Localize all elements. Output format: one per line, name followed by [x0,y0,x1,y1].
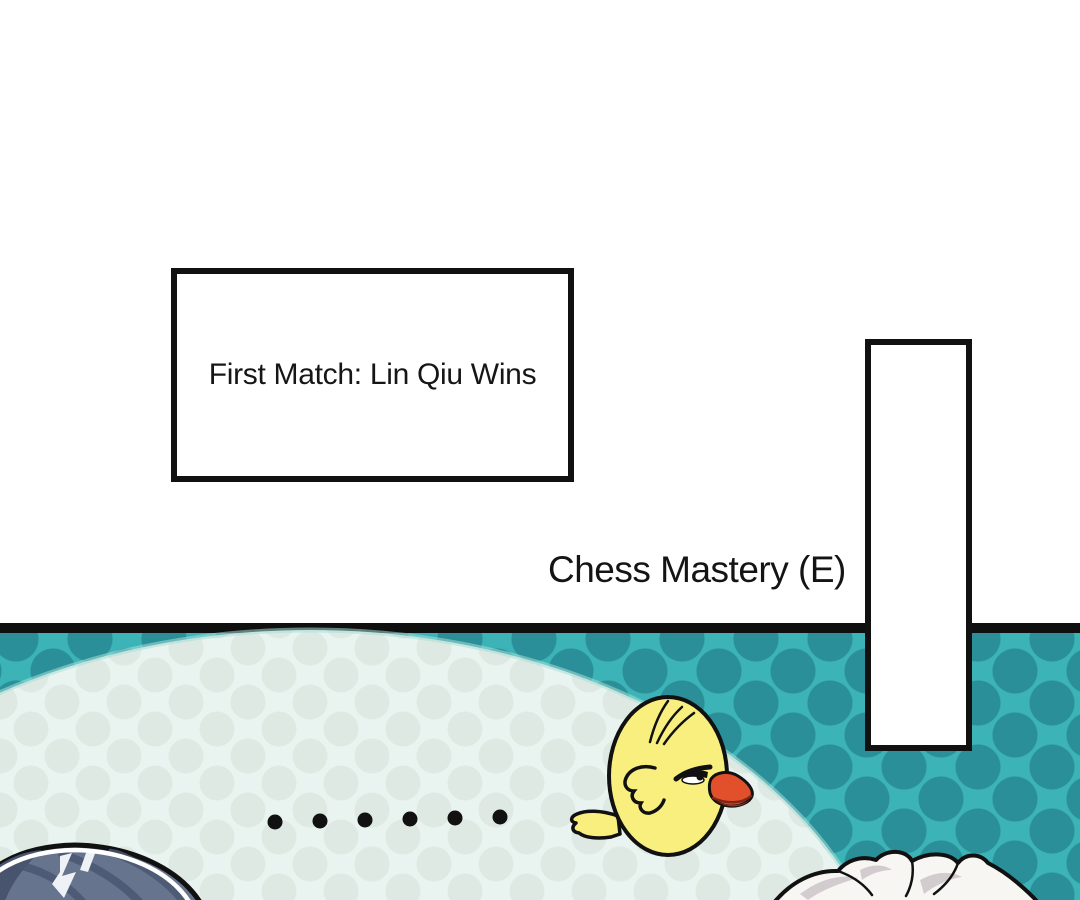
comic-panel: First Match: Lin Qiu Wins Chess Mastery … [0,0,1080,900]
caption-box: First Match: Lin Qiu Wins [171,268,574,482]
chick-eye-pupil [697,774,704,781]
vertical-panel [865,339,972,751]
caption-text: First Match: Lin Qiu Wins [209,358,537,392]
ellipsis-dot [313,814,328,829]
ellipsis-dot [358,813,373,828]
ellipsis-dot [403,812,418,827]
ellipsis-dot [493,810,508,825]
skill-label: Chess Mastery (E) [548,549,848,593]
ellipsis-dot [448,811,463,826]
chick-tail [572,811,620,838]
ellipsis-dot [268,815,283,830]
